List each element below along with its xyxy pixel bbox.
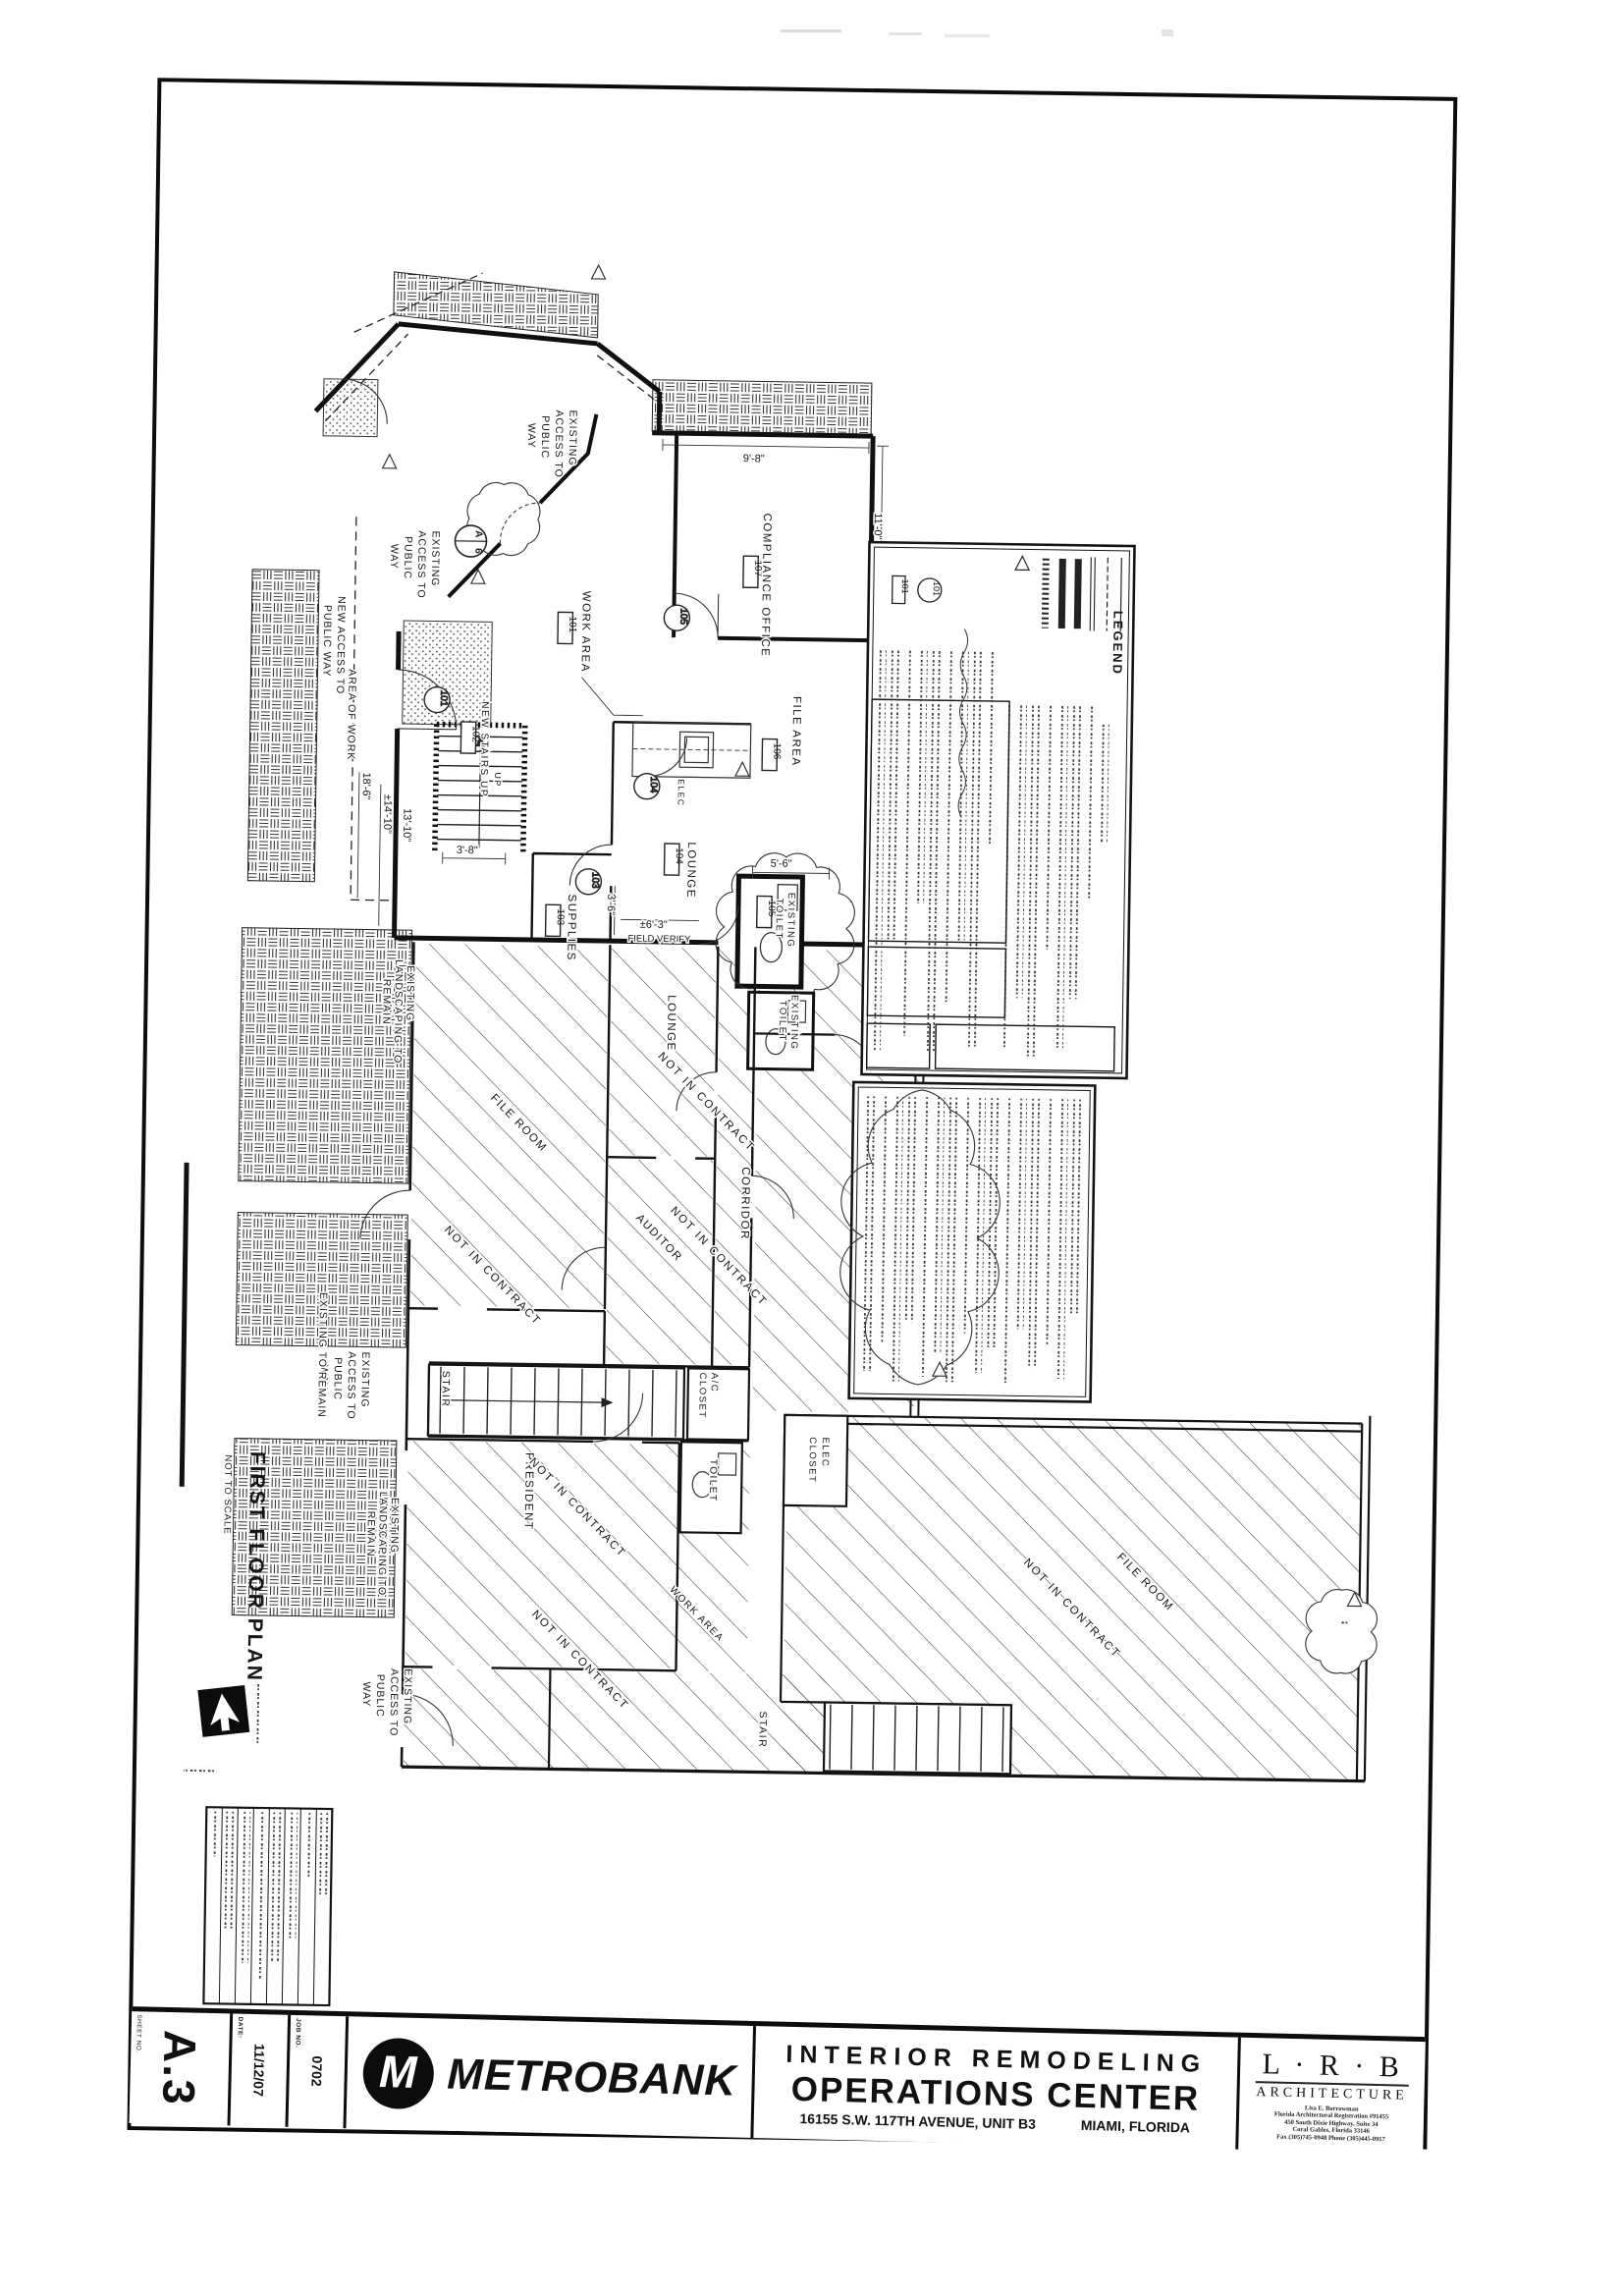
title-block: SHEET NO. A.3 DATE: 11/12/07 JOB NO. 070… bbox=[130, 2006, 1426, 2154]
illegible-note bbox=[184, 1766, 217, 1774]
svg-text:PUBLIC: PUBLIC bbox=[539, 415, 552, 459]
property-line bbox=[182, 1163, 187, 1487]
room-tags: 101 102 103 104 105 106 107 bbox=[459, 552, 785, 940]
svg-text:AREA OF WORK: AREA OF WORK bbox=[345, 669, 357, 760]
svg-text:EXISTING TO REMAIN: EXISTING TO REMAIN bbox=[315, 1292, 329, 1418]
svg-text:CORRIDOR: CORRIDOR bbox=[738, 1167, 751, 1240]
svg-text:LOUNGE: LOUNGE bbox=[684, 842, 697, 899]
svg-text:101: 101 bbox=[932, 581, 942, 596]
drawing-sheet: 9'-8" 11'-0" 18'-6" ±14'-10" 13'-10" 3'-… bbox=[127, 78, 1457, 2149]
svg-text:TOILET: TOILET bbox=[777, 1001, 788, 1042]
svg-text:ACCESS TO: ACCESS TO bbox=[415, 530, 428, 598]
svg-text:FIELD VERIFY: FIELD VERIFY bbox=[627, 933, 691, 945]
svg-text:EXISTING: EXISTING bbox=[567, 410, 579, 465]
svg-text:WAY: WAY bbox=[525, 423, 537, 449]
svg-text:TOILET: TOILET bbox=[707, 1459, 719, 1503]
svg-text:LANDSCAPING TO: LANDSCAPING TO bbox=[392, 959, 406, 1065]
svg-text:101: 101 bbox=[900, 579, 910, 594]
svg-text:9'-8": 9'-8" bbox=[743, 453, 765, 465]
illegible-note bbox=[1338, 1617, 1348, 1624]
svg-text:±14'-10": ±14'-10" bbox=[381, 794, 394, 834]
svg-text:COMPLIANCE OFFICE: COMPLIANCE OFFICE bbox=[759, 513, 773, 657]
svg-text:106: 106 bbox=[771, 743, 782, 760]
svg-text:ACCESS TO: ACCESS TO bbox=[345, 1351, 357, 1419]
svg-text:LOUNGE: LOUNGE bbox=[665, 995, 677, 1052]
metrobank-logo-icon: M bbox=[361, 2038, 434, 2110]
svg-text:WORK AREA: WORK AREA bbox=[579, 591, 592, 673]
scanned-drawing-page: 9'-8" 11'-0" 18'-6" ±14'-10" 13'-10" 3'-… bbox=[0, 0, 1623, 2296]
job-number: 0702 bbox=[308, 2056, 325, 2088]
svg-text:LANDSCAPING TO: LANDSCAPING TO bbox=[376, 1492, 390, 1597]
svg-text:CLOSET: CLOSET bbox=[806, 1437, 818, 1483]
architect-firm: ARCHITECTURE bbox=[1256, 2085, 1408, 2105]
job-no-label: JOB NO. bbox=[294, 2018, 301, 2048]
svg-text:WAY: WAY bbox=[388, 544, 400, 570]
kitchen-counter bbox=[632, 723, 751, 779]
svg-text:18'-6": 18'-6" bbox=[360, 772, 372, 799]
scan-artifact bbox=[945, 34, 990, 37]
svg-text:103: 103 bbox=[555, 908, 566, 925]
date-value: 11/12/07 bbox=[250, 2044, 267, 2097]
legend-title: LEGEND bbox=[1110, 611, 1126, 676]
scan-artifact bbox=[889, 32, 922, 35]
svg-text:PUBLIC: PUBLIC bbox=[374, 1674, 387, 1718]
north-arrow-icon bbox=[197, 1685, 249, 1737]
svg-text:EXISTING: EXISTING bbox=[784, 893, 796, 949]
architect-info: Lisa E. Borrowman Florida Architectural … bbox=[1273, 2104, 1388, 2143]
detail-marker: A 6 bbox=[455, 525, 486, 557]
svg-text:PUBLIC WAY: PUBLIC WAY bbox=[320, 605, 333, 678]
svg-text:ACCESS TO: ACCESS TO bbox=[552, 410, 565, 477]
svg-text:101: 101 bbox=[567, 616, 577, 632]
plan-title: FIRST FLOOR PLAN bbox=[243, 1451, 268, 1682]
svg-text:A: A bbox=[473, 530, 484, 537]
svg-text:104: 104 bbox=[648, 777, 659, 793]
job-number-cell: JOB NO. 0702 bbox=[288, 2015, 349, 2128]
svg-text:STAIR: STAIR bbox=[756, 1711, 769, 1748]
svg-text:EXISTING: EXISTING bbox=[429, 530, 442, 586]
architect-line: Fax (305)745-0948 Phone (305)445-0917 bbox=[1273, 2133, 1387, 2143]
date-label: DATE: bbox=[237, 2017, 244, 2039]
svg-text:±6'-3": ±6'-3" bbox=[640, 919, 668, 931]
svg-text:EXISTING: EXISTING bbox=[404, 965, 416, 1021]
revision-table bbox=[203, 1807, 332, 2005]
svg-text:REMAIN: REMAIN bbox=[364, 1511, 377, 1558]
notes-panel bbox=[839, 1082, 1095, 1402]
sheet-no-label: SHEET NO. bbox=[135, 2014, 142, 2053]
svg-text:5'-6": 5'-6" bbox=[771, 858, 792, 870]
scan-artifact bbox=[781, 29, 841, 32]
svg-text:13'-10": 13'-10" bbox=[401, 808, 413, 842]
svg-text:105: 105 bbox=[677, 608, 688, 625]
legend-panel: LEGEND 101 101 bbox=[861, 542, 1134, 1078]
existing-access-left-upper: EXISTING ACCESS TO PUBLIC WAY bbox=[388, 530, 442, 599]
svg-text:ELEC: ELEC bbox=[676, 779, 686, 806]
svg-text:3'-6": 3'-6" bbox=[605, 894, 617, 915]
logo-monogram: M bbox=[379, 2049, 417, 2095]
svg-text:REMAIN: REMAIN bbox=[380, 979, 393, 1025]
dashed-boundary-lines bbox=[318, 271, 661, 904]
sheet-number-cell: SHEET NO. A.3 bbox=[130, 2011, 234, 2125]
svg-text:STAIR: STAIR bbox=[439, 1371, 452, 1408]
architect-cell: L · R · B ARCHITECTURE Lisa E. Borrowman… bbox=[1238, 2038, 1426, 2154]
illegible-note bbox=[252, 1684, 262, 1743]
new-access-label: NEW ACCESS TO PUBLIC WAY bbox=[320, 596, 347, 695]
sheet-number: A.3 bbox=[152, 2030, 207, 2107]
svg-text:NEW ACCESS TO: NEW ACCESS TO bbox=[334, 596, 347, 694]
date-cell: DATE: 11/12/07 bbox=[230, 2014, 291, 2127]
svg-text:EXISTING: EXISTING bbox=[388, 1498, 401, 1554]
architect-initials: L · R · B bbox=[1256, 2048, 1409, 2087]
svg-text:PUBLIC: PUBLIC bbox=[402, 536, 414, 579]
existing-access-top: EXISTING ACCESS TO PUBLIC WAY bbox=[524, 410, 578, 478]
svg-text:ELEC: ELEC bbox=[820, 1437, 831, 1467]
project-city: MIAMI, FLORIDA bbox=[1081, 2116, 1191, 2135]
svg-text:11'-0": 11'-0" bbox=[872, 513, 884, 539]
scan-artifact bbox=[1162, 29, 1173, 36]
svg-text:3'-8": 3'-8" bbox=[457, 845, 478, 856]
svg-text:UP: UP bbox=[493, 772, 503, 788]
svg-text:NEW STAIRS UP: NEW STAIRS UP bbox=[478, 701, 490, 797]
svg-text:WAY: WAY bbox=[360, 1682, 372, 1708]
svg-text:A/C: A/C bbox=[709, 1373, 720, 1394]
client-cell: M METROBANK bbox=[346, 2016, 756, 2138]
floor-plan-drawing: 9'-8" 11'-0" 18'-6" ±14'-10" 13'-10" 3'-… bbox=[133, 82, 1445, 2023]
plan-scale: NOT TO SCALE bbox=[221, 1454, 233, 1534]
svg-text:PUBLIC: PUBLIC bbox=[332, 1357, 345, 1400]
svg-text:EXISTING: EXISTING bbox=[358, 1351, 371, 1407]
svg-text:EXISTING: EXISTING bbox=[402, 1668, 414, 1724]
plan-title-block: FIRST FLOOR PLAN NOT TO SCALE bbox=[184, 1450, 269, 1774]
svg-text:103: 103 bbox=[589, 872, 600, 889]
svg-text:EXISTING: EXISTING bbox=[788, 995, 800, 1051]
project-title-cell: INTERIOR REMODELING OPERATIONS CENTER 16… bbox=[753, 2026, 1241, 2150]
svg-text:SUPPLIES: SUPPLIES bbox=[565, 895, 577, 961]
svg-text:101: 101 bbox=[438, 690, 449, 707]
svg-text:TOILET: TOILET bbox=[774, 899, 785, 940]
svg-text:104: 104 bbox=[674, 847, 684, 864]
client-name: METROBANK bbox=[447, 2050, 737, 2106]
svg-text:ACCESS TO: ACCESS TO bbox=[387, 1668, 400, 1736]
svg-text:FILE AREA: FILE AREA bbox=[789, 696, 802, 767]
svg-text:CLOSET: CLOSET bbox=[696, 1373, 708, 1419]
svg-text:6: 6 bbox=[472, 548, 483, 554]
